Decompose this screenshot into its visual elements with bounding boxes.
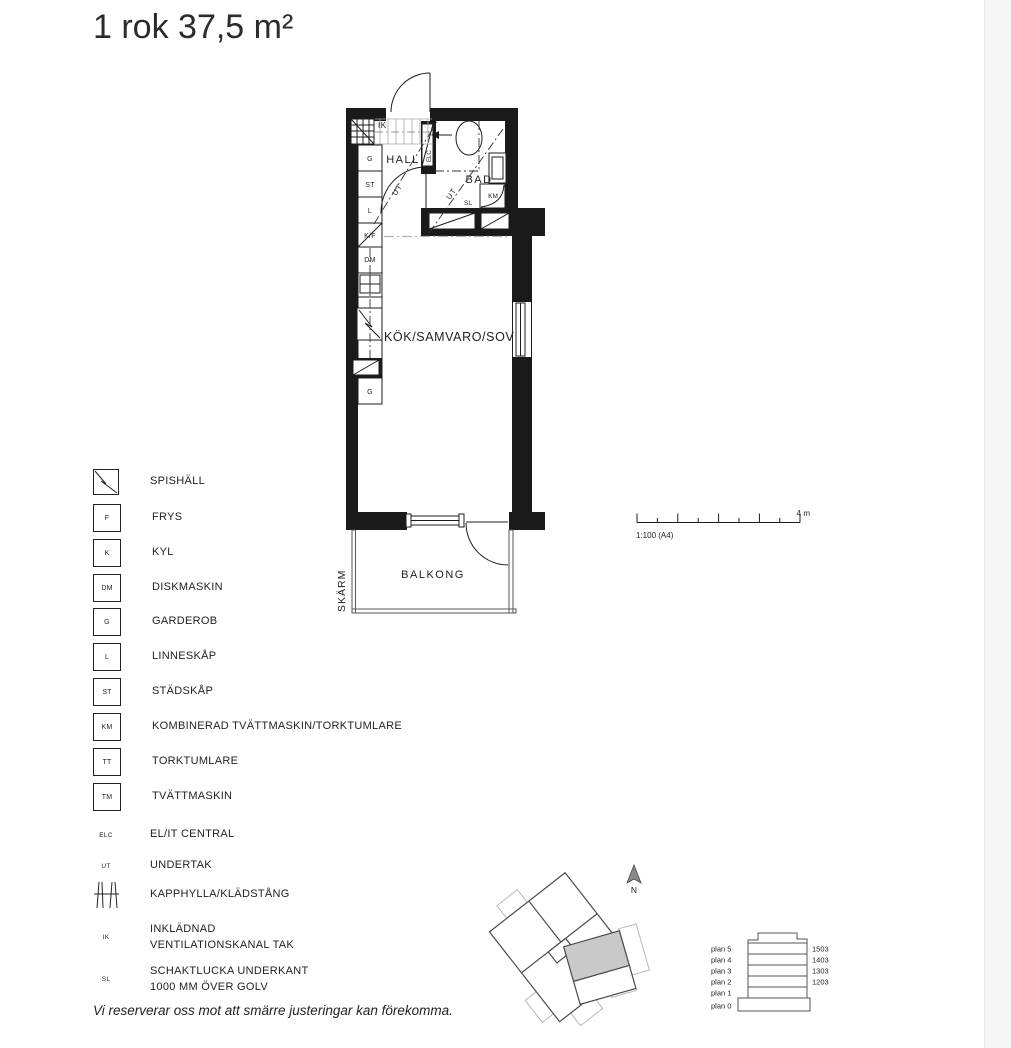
floor-number: 1403 (812, 956, 829, 965)
linneskap-label: L (368, 208, 372, 215)
sl-label: SL (464, 200, 472, 207)
hall-door-arc (381, 167, 426, 212)
legend-row: SPISHÄLL (93, 469, 205, 495)
legend-symbol-box: L (93, 643, 121, 671)
legend-symbol-box: K (93, 539, 121, 567)
legend-label: DISKMASKIN (152, 580, 223, 596)
legend-symbol-box: TT (93, 748, 121, 776)
legend-label: INKLÄDNAD VENTILATIONSKANAL TAK (150, 922, 294, 954)
window-balcony-icon (406, 514, 464, 527)
floor-number: 1503 (812, 945, 829, 954)
legend-symbol-box: DM (93, 574, 121, 602)
floor-label: plan 3 (711, 967, 731, 976)
legend-symbol-box: G (93, 608, 121, 636)
floor-label: plan 1 (711, 989, 731, 998)
legend-row: L LINNESKÅP (93, 643, 216, 671)
floor-number: 1303 (812, 967, 829, 976)
legend-row: K KYL (93, 539, 174, 567)
legend-label: FRYS (152, 510, 182, 526)
km-label: KM (488, 193, 498, 200)
kok-room-label: KÖK/SAMVARO/SOV (384, 330, 514, 344)
roof-outline (748, 933, 807, 943)
floor-bar (748, 965, 807, 976)
floor-bar (748, 954, 807, 965)
elc-label: ELC (427, 150, 433, 162)
north-arrow-icon: N (627, 865, 641, 895)
scale-ratio-label: 1:100 (A4) (636, 531, 674, 540)
ut-bad-label: UT (444, 186, 458, 201)
floor-number: 1203 (812, 978, 829, 987)
legend-symbol-box: F (93, 504, 121, 532)
legend-label: UNDERTAK (150, 858, 212, 874)
legend-row: KM KOMBINERAD TVÄTTMASKIN/TORKTUMLARE (93, 713, 402, 741)
floorplan-page: 1 rok 37,5 m² (0, 0, 1011, 1048)
balkong-room-label: BALKONG (401, 569, 465, 581)
site-plan: N (469, 860, 654, 1043)
hall-room-label: HALL (386, 154, 420, 166)
legend-symbol-box: KM (93, 713, 121, 741)
kapphylla-icon (93, 882, 119, 908)
legend-label: SPISHÄLL (150, 474, 205, 490)
legend-label: SCHAKTLUCKA UNDERKANT 1000 MM ÖVER GOLV (150, 964, 309, 996)
legend-row: ST STÄDSKÅP (93, 678, 213, 706)
legend-label: KAPPHYLLA/KLÄDSTÅNG (150, 887, 290, 903)
legend-symbol-code: SL (93, 967, 119, 993)
floor-bar (748, 976, 807, 987)
apartment-plan: ELC IK G ST L K/F (336, 73, 545, 613)
skarm-label: SKÄRM (336, 570, 348, 612)
floor-label: plan 0 (711, 1002, 731, 1011)
legend-row: KAPPHYLLA/KLÄDSTÅNG (93, 882, 290, 908)
page-margin (984, 0, 1011, 1048)
legend-label: KYL (152, 545, 174, 561)
legend-label: TORKTUMLARE (152, 754, 238, 770)
legend-row: G GARDEROB (93, 608, 217, 636)
floor-bar (748, 943, 807, 954)
legend-symbol-code: UT (93, 853, 119, 879)
legend-label: KOMBINERAD TVÄTTMASKIN/TORKTUMLARE (152, 719, 402, 735)
legend-row: TT TORKTUMLARE (93, 748, 238, 776)
window-right-icon (513, 302, 532, 357)
floor-label: plan 2 (711, 978, 731, 987)
toilet-icon (456, 121, 482, 155)
legend-label: GARDEROB (152, 614, 217, 630)
floor-bar (738, 998, 810, 1011)
garderob-label: G (367, 156, 373, 163)
legend-row: F FRYS (93, 504, 182, 532)
legend-label: LINNESKÅP (152, 649, 216, 665)
legend-label: EL/IT CENTRAL (150, 827, 234, 843)
floor-stack-diagram: plan 5 plan 4 plan 3 plan 2 plan 1 plan … (711, 933, 829, 1011)
disclaimer-text: Vi reserverar oss mot att smärre justeri… (93, 1003, 453, 1018)
bad-room-label: BAD (465, 174, 492, 186)
bathroom: KM SL (431, 121, 506, 208)
north-label: N (631, 885, 637, 895)
legend-label: TVÄTTMASKIN (152, 789, 232, 805)
legend-symbol-box: ST (93, 678, 121, 706)
legend-row: SL SCHAKTLUCKA UNDERKANT 1000 MM ÖVER GO… (93, 964, 309, 996)
legend-symbol-box: TM (93, 783, 121, 811)
floor-label: plan 4 (711, 956, 731, 965)
legend-row: TM TVÄTTMASKIN (93, 783, 232, 811)
legend-row: UT UNDERTAK (93, 853, 212, 879)
floor-label: plan 5 (711, 945, 731, 954)
legend-label: STÄDSKÅP (152, 684, 213, 700)
floor-bar (748, 987, 807, 998)
scale-length-label: 4 m (797, 509, 811, 518)
stove-icon (357, 308, 382, 340)
balcony-door-arc (466, 522, 508, 565)
legend-row: IK INKLÄDNAD VENTILATIONSKANAL TAK (93, 922, 294, 954)
ik-duct-icon (351, 119, 374, 144)
legend-symbol-code: IK (93, 925, 119, 951)
stadskap-label: ST (365, 182, 375, 189)
legend-symbol-code: ELC (93, 822, 119, 848)
legend-row: ELC EL/IT CENTRAL (93, 822, 234, 848)
garderob2-label: G (367, 389, 373, 396)
ik-plan-label: IK (378, 121, 387, 130)
kyl-frys-label: K/F (364, 233, 376, 240)
spishall-icon (93, 469, 119, 495)
washer-dryer-icon: KM (480, 184, 505, 208)
legend-row: DM DISKMASKIN (93, 574, 223, 602)
entry-door-arc (391, 73, 430, 112)
scale-bar: 4 m 1:100 (A4) (636, 509, 810, 540)
